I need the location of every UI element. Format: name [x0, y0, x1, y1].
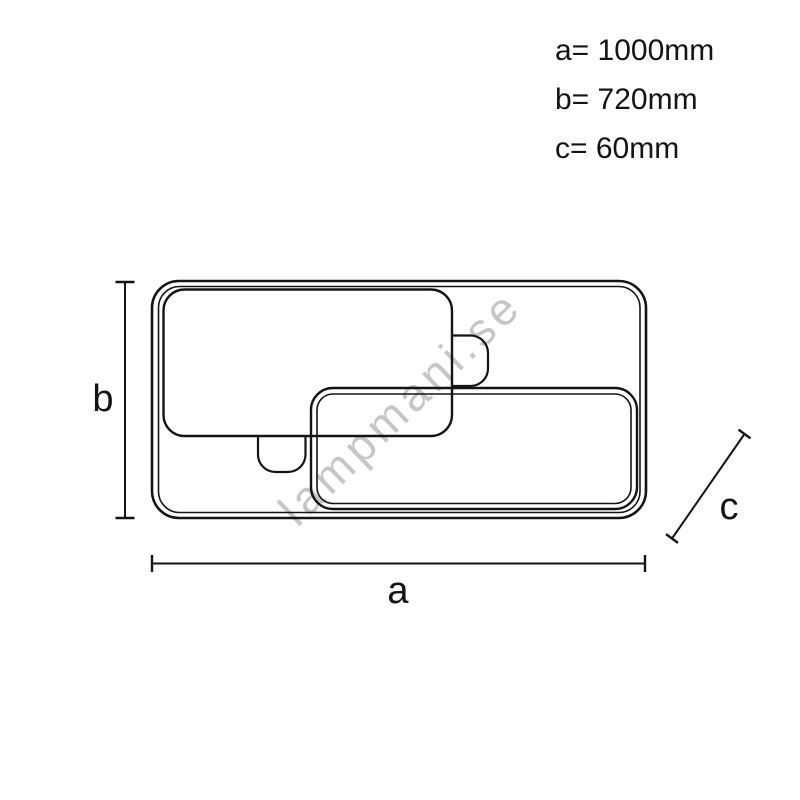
dim-label-a: a	[376, 572, 420, 610]
spec-line-a: a= 1000mm	[555, 26, 714, 75]
spec-line-c: c= 60mm	[555, 124, 714, 173]
dimension-spec-list: a= 1000mm b= 720mm c= 60mm	[555, 26, 714, 173]
tab-bottom	[258, 436, 306, 472]
lamp-outer-frame	[152, 281, 646, 518]
diagram-canvas: lampmani.se a= 1000mm	[0, 0, 800, 800]
panel-bottom-right-inner	[317, 394, 631, 504]
panel-top-left	[164, 290, 453, 437]
dim-label-b: b	[86, 380, 120, 418]
lamp-inner-frame	[159, 287, 641, 513]
dim-label-c: c	[712, 488, 746, 526]
tab-right	[452, 336, 488, 387]
panel-bottom-right-outer	[311, 388, 637, 509]
spec-line-b: b= 720mm	[555, 75, 714, 124]
